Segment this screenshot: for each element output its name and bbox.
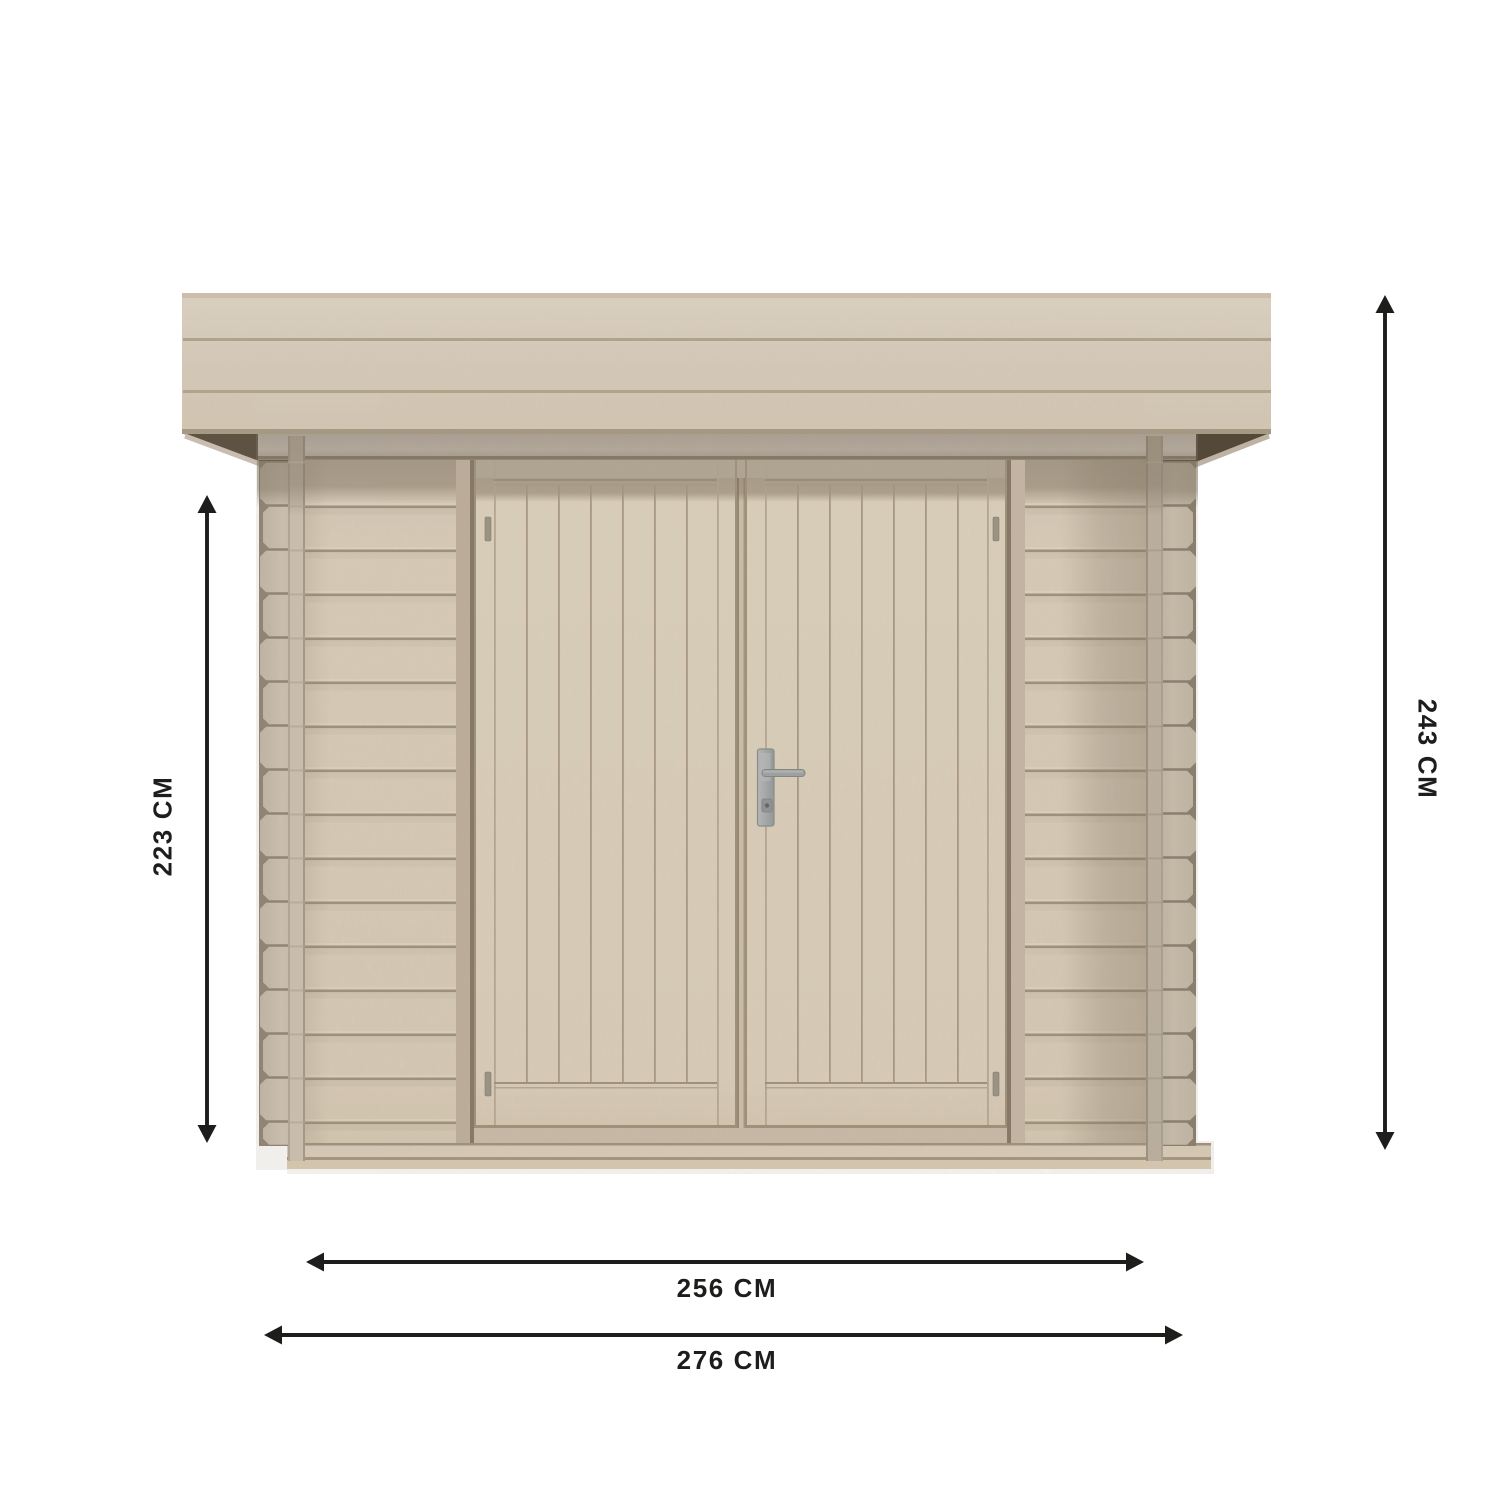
svg-text:276 CM: 276 CM <box>677 1345 778 1375</box>
svg-text:223 CM: 223 CM <box>148 776 178 877</box>
svg-text:243 CM: 243 CM <box>1413 699 1443 800</box>
svg-text:256 CM: 256 CM <box>677 1273 778 1303</box>
